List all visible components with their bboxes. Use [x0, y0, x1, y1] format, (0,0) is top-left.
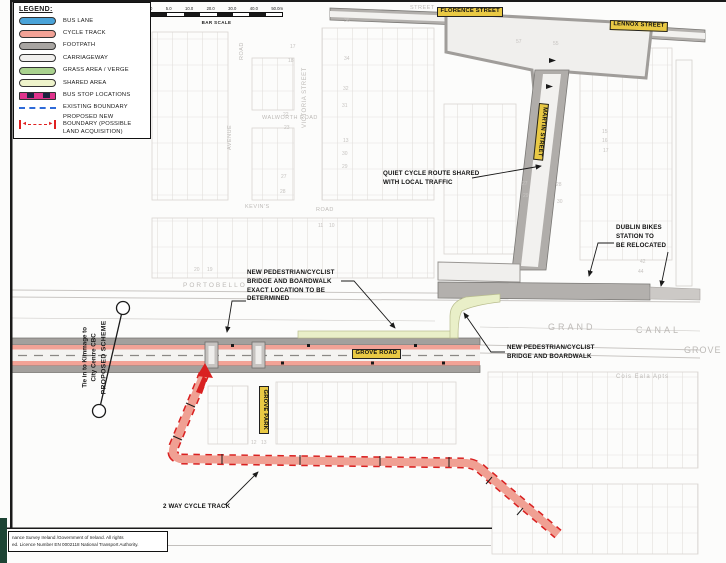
scale-bar: 05.010.020.030.040.050.0m BAR SCALE [150, 6, 283, 25]
match-line-label: Tie in to Kimmage to City Centre CBC PRO… [81, 297, 110, 417]
legend-swatch-pill [19, 42, 56, 50]
scale-segment [184, 13, 200, 16]
legend-swatch-pill [19, 79, 56, 87]
legend-swatch-dash [19, 107, 56, 109]
legend-title: LEGEND: [19, 6, 146, 13]
legend-item-label: PROPOSED NEW BOUNDARY (POSSIBLE LAND ACQ… [63, 114, 146, 136]
legend-swatch-bound: ◄► [19, 120, 56, 130]
legend-item: SHARED AREA [19, 77, 146, 89]
scale-bar-ticks: 05.010.020.030.040.050.0m [150, 6, 283, 11]
shared-area-path [298, 294, 500, 338]
legend-swatch-pill [19, 30, 56, 38]
scale-segment [200, 13, 216, 16]
legend-item-label: BUS STOP LOCATIONS [63, 92, 130, 99]
scale-segment [233, 13, 249, 16]
legend-item-label: SHARED AREA [63, 80, 106, 87]
legend-panel: LEGEND: BUS LANECYCLE TRACKFOOTPATHCARRI… [13, 2, 151, 139]
scheme-drawing-page: LEGEND: BUS LANECYCLE TRACKFOOTPATHCARRI… [0, 0, 726, 563]
scale-segment [266, 13, 282, 16]
legend-item-label: FOOTPATH [63, 42, 95, 49]
canal-bank-walkway [438, 262, 700, 300]
legend-swatch-pill [19, 67, 56, 75]
legend-item: CARRIAGEWAY [19, 52, 146, 64]
legend-item-label: EXISTING BOUNDARY [63, 104, 128, 111]
legend-swatch-busstop [19, 92, 56, 100]
scale-tick: 10.0 [185, 6, 193, 11]
legend-item: BUS STOP LOCATIONS [19, 89, 146, 101]
scale-tick: 30.0 [228, 6, 236, 11]
scale-tick: 40.0 [250, 6, 258, 11]
copyright-line: ed. Licence Number EN 0002118 National T… [12, 541, 164, 548]
scale-tick: 20.0 [207, 6, 215, 11]
scale-bar-caption: BAR SCALE [150, 20, 283, 25]
match-line-text: Tie in to Kimmage to [81, 297, 90, 417]
legend-item: FOOTPATH [19, 40, 146, 52]
scale-tick: 50.0m [271, 6, 283, 11]
match-line-text: City Centre CBC [90, 297, 99, 417]
scale-bar-segments [150, 12, 283, 17]
scale-tick: 5.0 [166, 6, 172, 11]
copyright-line: nance Survey Ireland /Government of Irel… [12, 534, 164, 541]
legend-item-label: BUS LANE [63, 18, 93, 25]
side-lane [676, 60, 692, 286]
copyright-note: nance Survey Ireland /Government of Irel… [8, 531, 168, 552]
legend-items: BUS LANECYCLE TRACKFOOTPATHCARRIAGEWAYGR… [19, 15, 146, 136]
match-line-scheme-text: PROPOSED SCHEME [99, 297, 109, 417]
legend-item: GRASS AREA / VERGE [19, 65, 146, 77]
martin-street [512, 58, 569, 270]
legend-item-label: GRASS AREA / VERGE [63, 67, 129, 74]
legend-swatch-pill [19, 17, 56, 25]
legend-item-label: CYCLE TRACK [63, 30, 106, 37]
scale-segment [249, 13, 265, 16]
scale-segment [167, 13, 183, 16]
scan-strip [0, 518, 7, 563]
legend-item: ◄►PROPOSED NEW BOUNDARY (POSSIBLE LAND A… [19, 114, 146, 136]
legend-item: BUS LANE [19, 15, 146, 27]
legend-item: CYCLE TRACK [19, 27, 146, 39]
scale-segment [151, 13, 167, 16]
legend-item-label: CARRIAGEWAY [63, 55, 108, 62]
scale-segment [217, 13, 233, 16]
legend-item: EXISTING BOUNDARY [19, 102, 146, 114]
legend-swatch-pill [19, 54, 56, 62]
footer-rule [165, 545, 491, 546]
